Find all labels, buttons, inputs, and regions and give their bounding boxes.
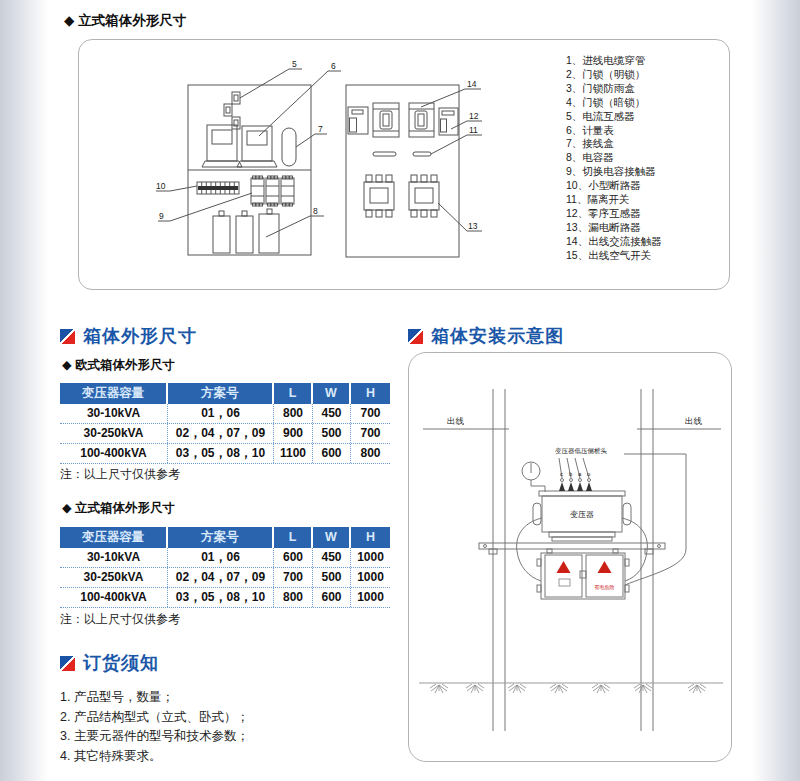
parts-list-item: 1、进线电缆穿管: [566, 54, 726, 68]
parts-list-item: 6、计量表: [566, 124, 726, 138]
danger-label: 有电危险: [595, 584, 615, 590]
callout-11-label: 11: [469, 125, 478, 135]
cell-capacity: 100-400kVA: [60, 588, 168, 607]
cell-width: 600: [313, 588, 351, 607]
ordering-list: 1. 产品型号，数量； 2. 产品结构型式（立式、卧式）； 3. 主要元器件的型…: [60, 688, 249, 766]
parts-list: 1、进线电缆穿管 2、门锁（明锁） 3、门锁防雨盒 4、门锁（暗锁） 5、电流互…: [566, 54, 726, 263]
cabinet-diagram-panel: 5 6 7 10 9 8 14 12 11 13 1、进线电缆穿管 2、门锁（明…: [78, 39, 730, 290]
cell-height: 700: [351, 424, 390, 443]
ordering-section-title: 订货须知: [83, 651, 159, 675]
ordering-item: 2. 产品结构型式（立式、卧式）；: [60, 708, 249, 728]
parts-list-item: 15、出线空气开关: [566, 249, 726, 263]
terminal-letter-o: o: [587, 471, 591, 477]
cell-length: 900: [274, 424, 313, 443]
cell-capacity: 30-10kVA: [60, 404, 168, 423]
parts-list-item: 12、零序互感器: [566, 207, 726, 221]
vertical-box-diagram-title: ◆ 立式箱体外形尺寸: [64, 12, 186, 30]
dimensions-section-heading: 箱体外形尺寸: [60, 324, 197, 348]
cell-scheme: 03，05，08，10: [168, 444, 274, 463]
section-marker-icon: [408, 329, 423, 344]
callout-13-label: 13: [468, 221, 478, 231]
terminal-letter-b: b: [569, 471, 573, 477]
ordering-section-heading: 订货须知: [60, 651, 159, 675]
callout-5-label: 5: [292, 59, 297, 69]
vertical-dimensions-table: 变压器容量 方案号 L W H 30-10kVA 01，06 600 450 1…: [60, 527, 390, 608]
cell-scheme: 02，04，07，09: [168, 568, 274, 587]
section-marker-icon: [60, 656, 75, 671]
dimensions-section-title: 箱体外形尺寸: [83, 324, 197, 348]
column-header: L: [274, 527, 313, 548]
parts-list-item: 8、电容器: [566, 151, 726, 165]
cell-width: 450: [313, 548, 351, 567]
column-header: 变压器容量: [60, 527, 168, 548]
cell-length: 800: [274, 588, 313, 607]
table-row: 30-250kVA 02，04，07，09 700 500 1000: [60, 568, 390, 588]
vertical-table-note: 注：以上尺寸仅供参考: [60, 611, 180, 628]
installation-diagram-panel: 出线 出线 变压器低压侧桩头 c b a o 变压器 有电危险: [408, 352, 732, 762]
table-row: 30-10kVA 01，06 800 450 700: [60, 404, 390, 424]
cell-scheme: 02，04，07，09: [168, 424, 274, 443]
table-row: 100-400kVA 03，05，08，10 1100 600 800: [60, 444, 390, 464]
table-header-row: 变压器容量 方案号 L W H: [60, 383, 390, 404]
cell-height: 1000: [351, 568, 390, 587]
outgoing-line-left-label: 出线: [447, 416, 465, 426]
callout-7-label: 7: [318, 124, 323, 134]
cell-width: 450: [313, 404, 351, 423]
column-header: 变压器容量: [60, 383, 168, 404]
cell-scheme: 03，05，08，10: [168, 588, 274, 607]
parts-list-item: 4、门锁（暗锁）: [566, 96, 726, 110]
parts-list-item: 10、小型断路器: [566, 179, 726, 193]
vertical-table-subtitle: ◆ 立式箱体外形尺寸: [62, 500, 175, 517]
column-header: H: [351, 527, 390, 548]
cell-height: 700: [351, 404, 390, 423]
cell-height: 1000: [351, 588, 390, 607]
table-row: 30-250kVA 02，04，07，09 900 500 700: [60, 424, 390, 444]
cell-capacity: 30-250kVA: [60, 568, 168, 587]
lv-terminal-label: 变压器低压侧桩头: [555, 447, 608, 455]
table-row: 30-10kVA 01，06 600 450 1000: [60, 548, 390, 568]
ordering-item: 3. 主要元器件的型号和技术参数；: [60, 727, 249, 747]
cell-width: 500: [313, 424, 351, 443]
cell-capacity: 100-400kVA: [60, 444, 168, 463]
cell-length: 600: [274, 548, 313, 567]
column-header: 方案号: [168, 527, 274, 548]
cell-height: 1000: [351, 548, 390, 567]
ordering-item: 1. 产品型号，数量；: [60, 688, 249, 708]
cell-capacity: 30-10kVA: [60, 548, 168, 567]
cell-scheme: 01，06: [168, 404, 274, 423]
column-header: L: [274, 383, 313, 404]
eu-table-note: 注：以上尺寸仅供参考: [60, 466, 180, 483]
table-header-row: 变压器容量 方案号 L W H: [60, 527, 390, 548]
column-header: H: [351, 383, 390, 404]
installation-section-title: 箱体安装示意图: [431, 324, 564, 348]
terminal-letter-a: a: [578, 471, 582, 477]
cell-width: 500: [313, 568, 351, 587]
cell-width: 600: [313, 444, 351, 463]
cell-length: 800: [274, 404, 313, 423]
callout-10-label: 10: [156, 181, 166, 191]
parts-list-item: 3、门锁防雨盒: [566, 82, 726, 96]
installation-section-heading: 箱体安装示意图: [408, 324, 564, 348]
terminal-letter-c: c: [560, 471, 563, 477]
column-header: 方案号: [168, 383, 274, 404]
transformer-label: 变压器: [570, 510, 594, 519]
installation-diagram: 出线 出线 变压器低压侧桩头 c b a o 变压器 有电危险: [409, 353, 731, 761]
eu-table-subtitle: ◆ 欧式箱体外形尺寸: [62, 357, 175, 374]
parts-list-item: 13、漏电断路器: [566, 221, 726, 235]
callout-9-label: 9: [159, 211, 164, 221]
parts-list-item: 14、出线交流接触器: [566, 235, 726, 249]
outgoing-line-right-label: 出线: [685, 416, 703, 426]
cell-scheme: 01，06: [168, 548, 274, 567]
callout-6-label: 6: [331, 61, 336, 71]
cell-length: 1100: [274, 444, 313, 463]
parts-list-item: 11、隔离开关: [566, 193, 726, 207]
ordering-item: 4. 其它特殊要求。: [60, 747, 249, 767]
callout-14-label: 14: [467, 79, 477, 89]
column-header: W: [313, 383, 351, 404]
column-header: W: [313, 527, 351, 548]
callout-8-label: 8: [313, 206, 318, 216]
cell-height: 800: [351, 444, 390, 463]
eu-dimensions-table: 变压器容量 方案号 L W H 30-10kVA 01，06 800 450 7…: [60, 383, 390, 464]
parts-list-item: 5、电流互感器: [566, 110, 726, 124]
cell-capacity: 30-250kVA: [60, 424, 168, 443]
section-marker-icon: [60, 329, 75, 344]
parts-list-item: 9、切换电容接触器: [566, 165, 726, 179]
cell-length: 700: [274, 568, 313, 587]
table-row: 100-400kVA 03，05，08，10 800 600 1000: [60, 588, 390, 608]
parts-list-item: 7、接线盒: [566, 137, 726, 151]
parts-list-item: 2、门锁（明锁）: [566, 68, 726, 82]
callout-12-label: 12: [469, 111, 479, 121]
